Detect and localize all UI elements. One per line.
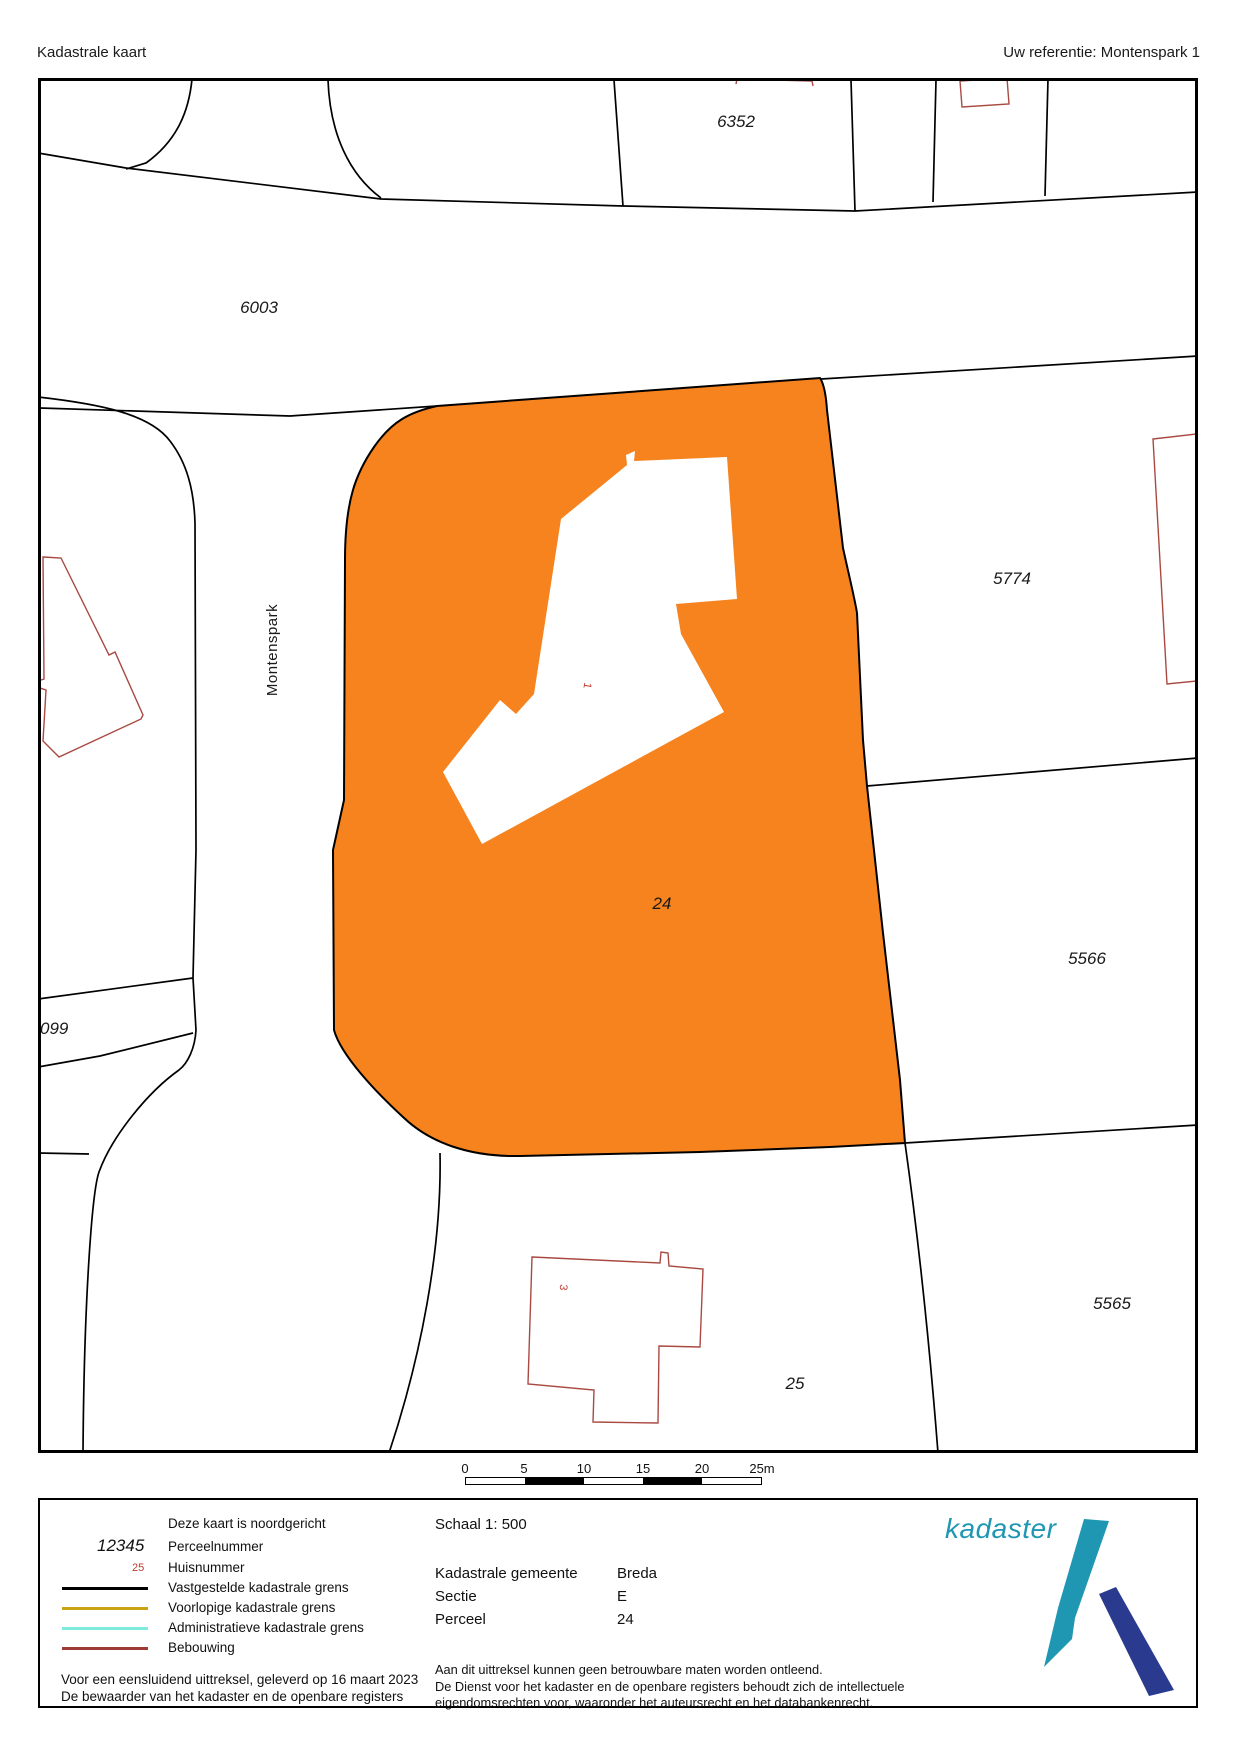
building-top-right-outline [960,78,1009,107]
parcel-label-5774: 5774 [993,569,1031,588]
detail-gemeente-value: Breda [617,1565,657,1582]
parcel-label-24: 24 [652,894,672,913]
boundary-curve-2 [328,80,381,198]
legend-housenumber-label: Huisnummer [168,1560,245,1575]
scale-segment [525,1478,584,1484]
boundary-5774-5566 [867,758,1198,786]
legend-line-bebouwing-swatch [62,1647,148,1650]
scale-segment [702,1478,761,1484]
detail-sectie-label: Sectie [435,1588,617,1605]
boundary-topband-1 [933,80,936,202]
legend-footer-line1: Voor een eensluidend uittreksel, gelever… [61,1672,418,1687]
parcel-label-6003: 6003 [240,298,278,317]
parcel-label-5566: 5566 [1068,949,1106,968]
boundary-6352-right [851,80,855,211]
building-3-outline [528,1252,703,1423]
scale-tick-15: 15 [636,1461,650,1476]
street-label-montenspark: Montenspark [264,604,281,696]
scale-segment [643,1478,702,1484]
legend-line-administratief-label: Administratieve kadastrale grens [168,1620,364,1635]
boundary-6352-left [614,80,623,206]
boundary-6003-5774 [821,356,1198,379]
parcel-label-5565: 5565 [1093,1294,1131,1313]
boundary-road-left [38,397,196,1453]
document-title: Kadastrale kaart [37,44,146,61]
boundary-topband-2 [1045,79,1048,196]
disclaimer-line3: eigendomsrechten voor, waaronder het aut… [435,1695,873,1710]
north-note: Deze kaart is noordgericht [168,1516,326,1531]
reference-text: Uw referentie: Montenspark 1 [1003,44,1200,61]
legend-line-vastgesteld-label: Vastgestelde kadastrale grens [168,1580,349,1595]
boundary-5566-5565 [905,1125,1198,1143]
scale-tick-10: 10 [577,1461,591,1476]
boundary-25-left [389,1153,440,1453]
scale-bar: 0 5 10 15 20 25m [465,1461,765,1491]
boundary-099-bottom [38,1033,193,1067]
legend-panel: Deze kaart is noordgericht 12345 Perceel… [38,1498,1198,1708]
logo-mark-navy-blade [1099,1587,1174,1696]
legend-line-voorlopig-label: Voorlopige kadastrale grens [168,1600,335,1615]
kadaster-logo-text: kadaster [945,1513,1056,1545]
scale-segment [584,1478,643,1484]
scale-segment [466,1478,525,1484]
scale-text: Schaal 1: 500 [435,1516,527,1533]
boundary-099-top [38,978,193,999]
detail-perceel-label: Perceel [435,1611,617,1628]
cadastral-map: 6352 6003 5774 5566 5565 24 25 099 1 3 M… [38,78,1198,1453]
legend-footer-line2: De bewaarder van het kadaster en de open… [61,1689,403,1704]
legend-housenumber-sample: 25 [132,1562,144,1574]
disclaimer-line2: De Dienst voor het kadaster en de openba… [435,1679,905,1694]
legend-line-bebouwing-label: Bebouwing [168,1640,235,1655]
house-number-3: 3 [557,1284,569,1291]
scale-tick-0: 0 [461,1461,468,1476]
boundary-top-left-curve [126,79,192,169]
boundary-top-long-line [38,153,1198,211]
disclaimer-line1: Aan dit uittreksel kunnen geen betrouwba… [435,1662,823,1677]
building-left-outline [38,557,143,757]
scale-bar-segments [465,1477,762,1485]
legend-line-vastgesteld-swatch [62,1587,148,1590]
parcel-label-099: 099 [40,1019,69,1038]
parcel-label-25: 25 [785,1374,805,1393]
legend-line-voorlopig-swatch [62,1607,148,1610]
legend-parcelnumber-sample: 12345 [97,1536,144,1556]
detail-sectie-value: E [617,1588,627,1605]
boundary-left-small [38,1153,89,1154]
detail-perceel-value: 24 [617,1611,634,1628]
kadaster-extract-page: Kadastrale kaart Uw referentie: Montensp… [0,0,1240,1755]
parcel-label-6352: 6352 [717,112,755,131]
scale-tick-20: 20 [695,1461,709,1476]
legend-line-administratief-swatch [62,1627,148,1630]
scale-tick-25m: 25m [749,1461,774,1476]
boundary-25-right [905,1143,938,1453]
detail-gemeente-label: Kadastrale gemeente [435,1565,617,1582]
building-right-outline [1153,434,1197,684]
scale-tick-5: 5 [520,1461,527,1476]
legend-parcelnumber-label: Perceelnummer [168,1539,263,1554]
boundary-road-right-top [40,406,437,416]
